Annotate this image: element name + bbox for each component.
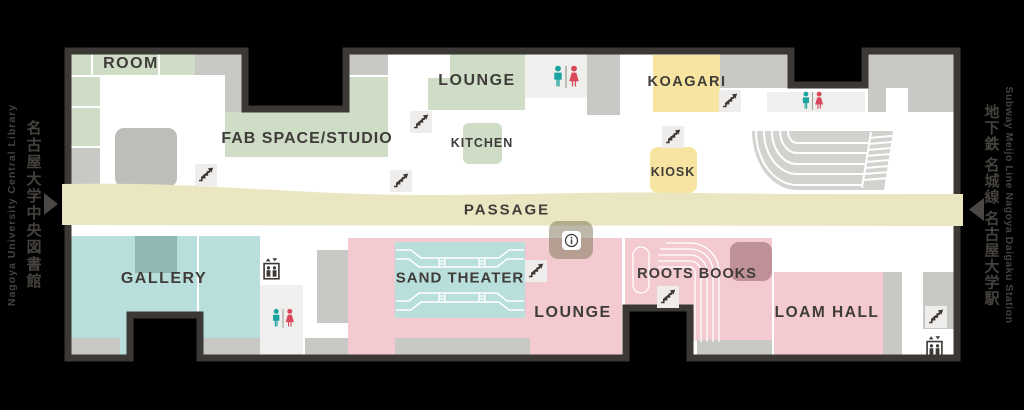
floor-map: ROOM FAB SPACE/STUDIO LOUNGE KITCHEN KOA… xyxy=(0,0,1024,410)
area-room-corner-gray xyxy=(195,51,242,75)
elevator-icon xyxy=(262,257,281,280)
area-gray-strip-w xyxy=(317,250,348,323)
room-label-kitchen: KITCHEN xyxy=(451,136,514,150)
room-label-room: ROOM xyxy=(103,55,159,73)
room-label-kiosk: KIOSK xyxy=(651,165,696,179)
stairs-icon xyxy=(657,286,679,308)
information-icon xyxy=(549,221,593,259)
stairs-icon xyxy=(662,126,684,148)
restroom-icon xyxy=(266,307,300,330)
restroom-icon xyxy=(546,64,586,90)
area-room-gray-square xyxy=(115,128,177,187)
area-gray-strip-loam xyxy=(883,272,902,355)
stairs-icon xyxy=(410,111,432,133)
information-icon-inner xyxy=(562,231,581,250)
room-label-lounge-south: LOUNGE xyxy=(534,304,611,322)
area-tile-green-ne xyxy=(346,77,388,112)
area-room-left-column xyxy=(68,77,100,147)
stairs-icon xyxy=(390,170,412,192)
area-gray-block-ne xyxy=(868,52,954,112)
tile-gridline xyxy=(68,75,195,77)
area-gray-block-ne-door xyxy=(886,88,908,112)
wayfinding-right-ja: 地下鉄 名城線 名古屋大学駅 xyxy=(981,104,1002,306)
elevator-icon xyxy=(925,335,944,358)
stairs-icon xyxy=(719,90,741,112)
tile-gridline xyxy=(346,75,388,77)
area-gray-strip-w2 xyxy=(305,338,348,355)
tile-gridline xyxy=(91,51,93,76)
stairs-icon xyxy=(195,164,217,186)
stairs-icon xyxy=(525,260,547,282)
restroom-icon xyxy=(796,90,829,112)
stairs-icon xyxy=(925,306,947,328)
room-label-lounge-north: LOUNGE xyxy=(438,72,515,90)
area-gray-block-2 xyxy=(720,52,788,88)
room-label-sand-theater: SAND THEATER xyxy=(396,270,524,287)
room-label-passage: PASSAGE xyxy=(464,202,550,219)
tile-gridline xyxy=(68,106,100,108)
area-room-corner-gray-strip xyxy=(225,75,242,112)
room-label-koagari: KOAGARI xyxy=(648,74,727,90)
area-gallery-dark-block xyxy=(135,236,177,273)
room-label-fab-space: FAB SPACE/STUDIO xyxy=(221,130,392,148)
wayfinding-left-en: Nagoya University Central Library xyxy=(6,104,18,306)
area-room-left-gray-tile xyxy=(68,148,100,185)
room-label-gallery: GALLERY xyxy=(121,270,207,288)
area-gray-strip-s4 xyxy=(697,340,772,355)
wayfinding-left-ja: 名古屋大学中央図書館 xyxy=(23,120,44,290)
area-gray-block-1 xyxy=(587,52,620,115)
room-label-loam-hall: LOAM HALL xyxy=(775,304,880,322)
area-tile-gray-ne xyxy=(346,51,388,75)
room-label-roots-books: ROOTS BOOKS xyxy=(637,266,757,282)
tile-gridline xyxy=(68,146,100,148)
area-gray-strip-s3 xyxy=(395,338,530,355)
wayfinding-right-en: Subway Meijo Line Nagoya Daigaku Station xyxy=(1003,86,1015,323)
area-gray-strip-s2 xyxy=(200,338,260,355)
area-gray-strip-s1 xyxy=(68,338,120,355)
arrow-right-icon xyxy=(44,193,58,215)
